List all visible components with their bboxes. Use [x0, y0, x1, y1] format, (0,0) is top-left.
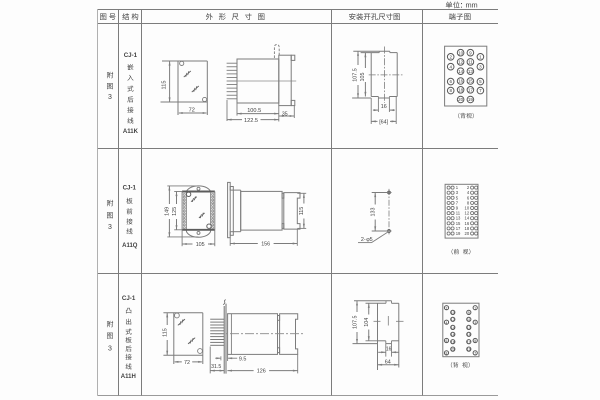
svg-text:64: 64: [385, 359, 391, 365]
svg-text:156: 156: [261, 242, 270, 248]
svg-text:72: 72: [184, 360, 190, 366]
svg-text:72: 72: [189, 107, 195, 113]
svg-text:3: 3: [108, 94, 112, 101]
svg-text:100.5: 100.5: [247, 108, 261, 114]
svg-text:7: 7: [474, 352, 476, 356]
svg-text:11: 11: [467, 318, 471, 322]
svg-text:105: 105: [360, 73, 366, 82]
svg-text:CJ-1: CJ-1: [124, 52, 138, 59]
svg-text:13: 13: [467, 326, 471, 330]
svg-text:107.5: 107.5: [352, 315, 358, 329]
svg-text:107.5: 107.5: [352, 68, 358, 82]
svg-text:133: 133: [371, 208, 377, 217]
svg-text:16: 16: [381, 104, 387, 110]
svg-text:20: 20: [458, 97, 464, 102]
svg-text:mm: mm: [466, 1, 478, 10]
svg-text:3: 3: [108, 346, 112, 353]
svg-text:15: 15: [467, 333, 471, 337]
svg-text:20: 20: [465, 231, 470, 236]
svg-text:15: 15: [468, 79, 474, 84]
svg-text:2: 2: [446, 306, 448, 310]
svg-text:CJ-1: CJ-1: [123, 185, 137, 192]
svg-text:1: 1: [474, 306, 476, 310]
svg-text:12: 12: [451, 318, 455, 322]
svg-text:115: 115: [163, 328, 169, 337]
svg-text:A11Q: A11Q: [122, 243, 138, 249]
svg-text:6: 6: [446, 339, 448, 343]
svg-text:3: 3: [474, 321, 476, 325]
svg-text:10: 10: [458, 50, 464, 55]
svg-text:18: 18: [458, 87, 464, 92]
svg-text:9.5: 9.5: [239, 356, 247, 362]
svg-text:105: 105: [196, 242, 205, 248]
svg-text:A11H: A11H: [121, 374, 136, 380]
svg-text:16: 16: [386, 346, 392, 352]
svg-text:122.5: 122.5: [244, 118, 258, 124]
svg-text:18: 18: [451, 340, 455, 344]
svg-text:16: 16: [458, 79, 464, 84]
svg-text:115: 115: [162, 81, 168, 90]
svg-text:14: 14: [451, 326, 455, 330]
svg-text:104: 104: [364, 318, 370, 327]
svg-text:149: 149: [165, 207, 171, 216]
svg-text:9: 9: [468, 311, 470, 315]
svg-text:19: 19: [456, 231, 461, 236]
svg-text:126: 126: [257, 369, 266, 375]
svg-text:CJ-1: CJ-1: [122, 295, 136, 302]
svg-text:4: 4: [446, 321, 448, 325]
svg-text:17: 17: [468, 87, 474, 92]
svg-text:19: 19: [468, 97, 474, 102]
svg-text:13: 13: [468, 69, 474, 74]
svg-text:3: 3: [108, 224, 112, 231]
svg-text:35: 35: [282, 111, 288, 117]
svg-text:17: 17: [467, 340, 471, 344]
svg-text:16: 16: [451, 333, 455, 337]
svg-text:11: 11: [468, 60, 473, 65]
svg-text:125: 125: [172, 207, 178, 216]
svg-text:10: 10: [451, 311, 455, 315]
svg-text:14: 14: [458, 69, 464, 74]
svg-text:8: 8: [446, 352, 448, 356]
svg-text:20: 20: [451, 348, 455, 352]
svg-text:A11K: A11K: [123, 129, 139, 135]
svg-text:31.5: 31.5: [211, 364, 221, 370]
svg-text:12: 12: [458, 60, 464, 65]
svg-text:19: 19: [467, 348, 471, 352]
svg-text:[64]: [64]: [379, 120, 388, 126]
svg-text:115: 115: [299, 207, 305, 216]
svg-text:5: 5: [474, 339, 476, 343]
